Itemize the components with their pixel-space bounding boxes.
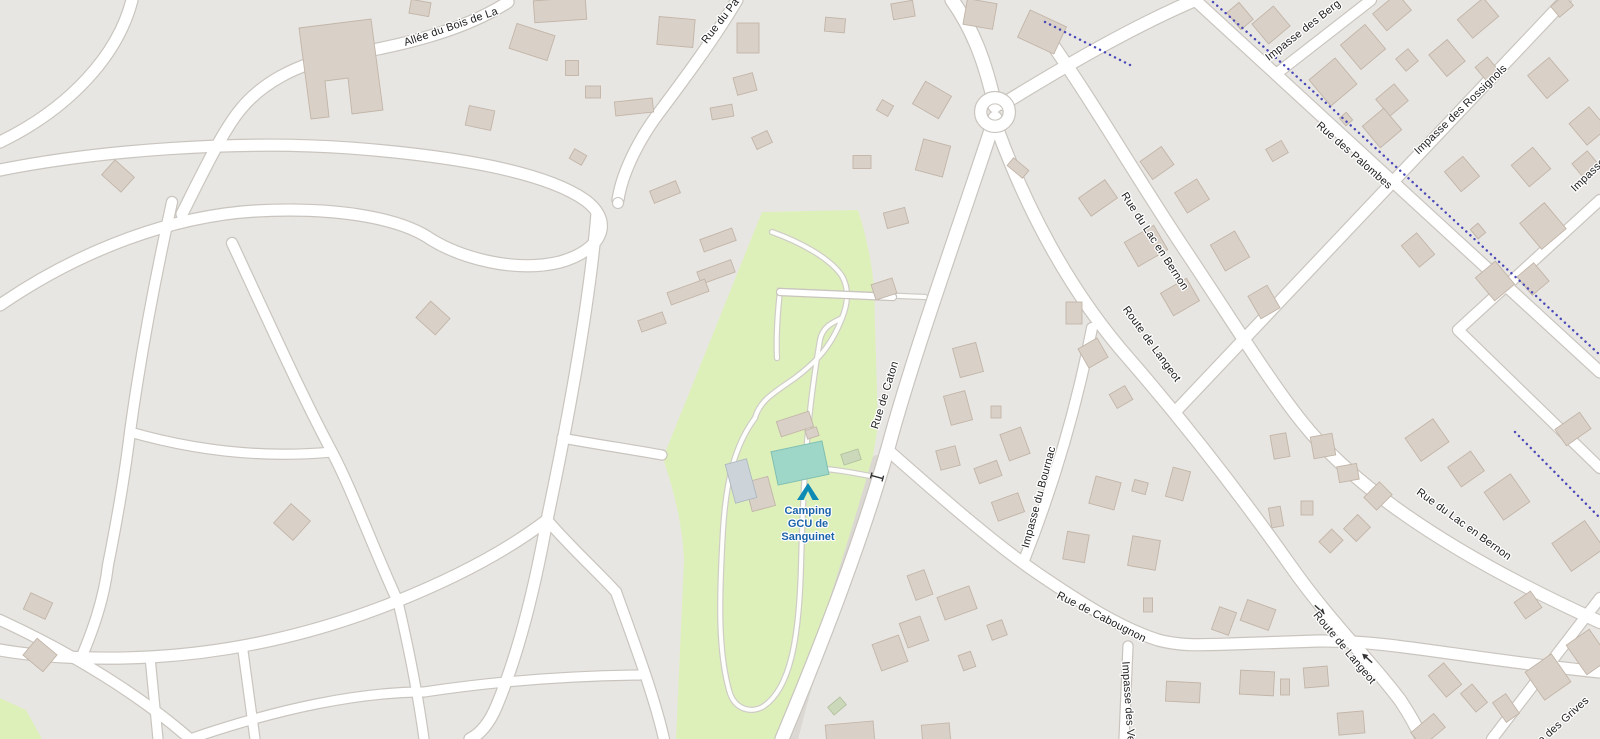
- building: [1337, 463, 1359, 482]
- building: [963, 0, 997, 29]
- building: [1066, 302, 1082, 324]
- building: [1144, 598, 1153, 612]
- building: [533, 0, 586, 23]
- building: [1165, 681, 1200, 703]
- dead-end-bulb: [613, 198, 624, 209]
- building: [824, 17, 845, 33]
- camp-site-label-line2: GCU de: [788, 518, 828, 530]
- building: [1303, 666, 1329, 688]
- camp-site-label: Camping GCU de Sanguinet: [781, 505, 835, 543]
- building: [737, 23, 759, 53]
- building: [566, 61, 579, 76]
- camp-site-label-line1: Camping: [784, 505, 831, 517]
- building: [991, 406, 1001, 418]
- building: [1239, 670, 1274, 696]
- building: [1310, 433, 1335, 458]
- building: [1337, 711, 1365, 735]
- building: [586, 86, 601, 98]
- building: [1128, 536, 1161, 570]
- building: [1281, 679, 1290, 695]
- building: [409, 0, 431, 17]
- building: [853, 156, 871, 169]
- map-canvas[interactable]: Camping GCU de Sanguinet Allée du Bois d…: [0, 0, 1600, 739]
- camp-site-label-line3: Sanguinet: [781, 531, 835, 543]
- building: [1301, 501, 1313, 515]
- building: [921, 723, 950, 739]
- building: [1063, 531, 1090, 562]
- building: [657, 16, 695, 47]
- building: [891, 0, 915, 20]
